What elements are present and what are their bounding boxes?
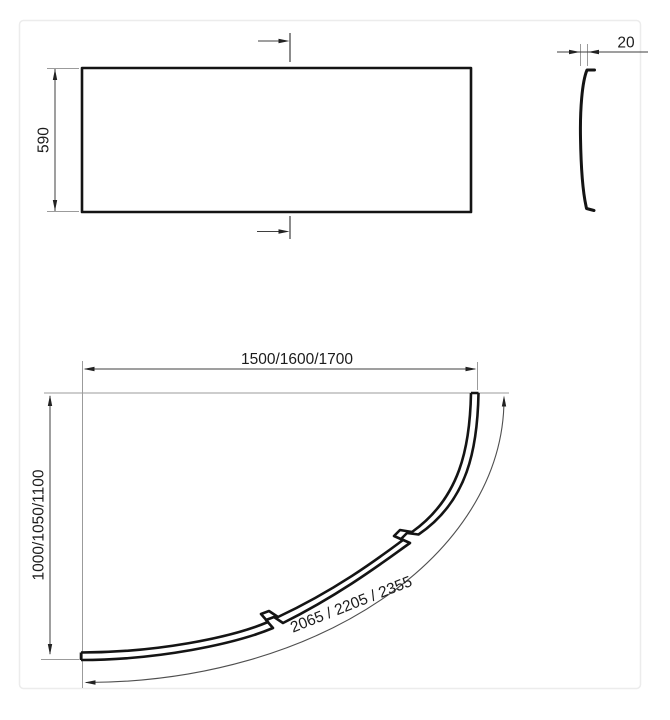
dimension-label-thickness: 20 xyxy=(617,35,635,52)
dimension-label-depth: 1000/1050/1100 xyxy=(31,469,48,580)
front-view-outline xyxy=(82,68,471,212)
panel-inner-curve xyxy=(81,393,471,653)
side-profile-outline xyxy=(580,70,594,211)
arrowhead-right-icon xyxy=(279,39,290,43)
center-mark-top xyxy=(258,33,290,62)
drawing-page: 590 20 1500/1600/1700 xyxy=(0,0,670,720)
arrowhead-right-icon xyxy=(466,367,477,371)
dimension-label-height: 590 xyxy=(36,127,53,153)
arrowhead-down-icon xyxy=(48,644,52,655)
plan-view: 1500/1600/1700 1000/1050/1100 2065 / 220… xyxy=(31,351,510,688)
dimension-label-width: 1500/1600/1700 xyxy=(241,351,353,368)
arrowhead-left-icon xyxy=(85,680,96,684)
arrowhead-up-icon xyxy=(48,395,52,406)
arrowhead-left-icon xyxy=(84,367,95,371)
arrowhead-up-icon xyxy=(502,396,506,407)
front-view: 590 xyxy=(36,33,472,239)
center-mark-bottom xyxy=(257,216,290,239)
arrowhead-down-icon xyxy=(53,200,57,211)
side-view: 20 xyxy=(557,35,648,211)
arrowhead-right-icon xyxy=(569,50,580,54)
arrowhead-right-icon xyxy=(279,229,290,233)
arrowhead-up-icon xyxy=(53,69,57,80)
bathtub-panel-technical-drawing: 590 20 1500/1600/1700 xyxy=(0,0,670,720)
arrowhead-left-icon xyxy=(588,50,599,54)
dimension-arc-length-line xyxy=(86,399,504,683)
